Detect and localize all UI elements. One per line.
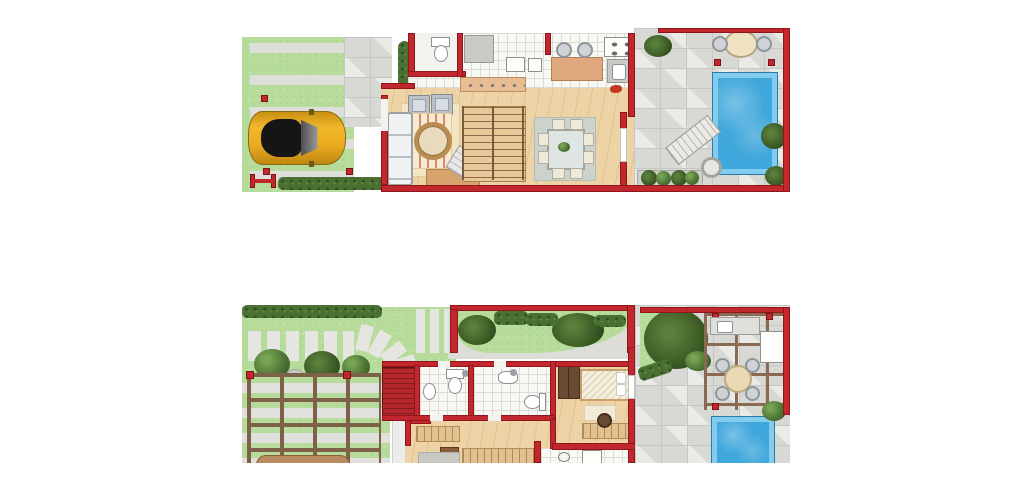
swimming-pool-cropped bbox=[712, 417, 774, 463]
wall bbox=[468, 365, 474, 419]
outdoor-kitchen-counter bbox=[710, 317, 760, 335]
boundary-wall bbox=[450, 309, 458, 353]
pergola-chair bbox=[715, 358, 730, 373]
wall-post bbox=[714, 59, 721, 66]
dining-chair bbox=[552, 119, 565, 130]
sink bbox=[423, 383, 436, 400]
dining-chair bbox=[570, 119, 583, 130]
car-glass bbox=[261, 119, 302, 157]
utility-fixture bbox=[558, 452, 570, 462]
stair-rail bbox=[462, 106, 464, 180]
wall bbox=[534, 441, 541, 463]
gate-marker bbox=[250, 174, 276, 188]
table-centerpiece bbox=[558, 142, 570, 152]
toilet-tank bbox=[539, 393, 546, 411]
pergola-chair bbox=[715, 386, 730, 401]
door-opening bbox=[430, 415, 443, 421]
boundary-wall bbox=[450, 305, 635, 311]
pillow bbox=[616, 372, 626, 384]
wall bbox=[405, 418, 411, 446]
car-mirror bbox=[309, 161, 314, 167]
kitchen-cabinets bbox=[464, 35, 494, 63]
dining-chair bbox=[570, 168, 583, 179]
terrace-bush bbox=[644, 35, 672, 57]
outdoor-table bbox=[724, 30, 758, 58]
dining-chair bbox=[583, 133, 594, 146]
wall bbox=[552, 443, 636, 450]
perimeter-wall-bottom bbox=[381, 185, 790, 192]
wall bbox=[550, 361, 556, 419]
wall bbox=[545, 33, 551, 55]
door-opening bbox=[438, 361, 450, 367]
perimeter-wall-top bbox=[658, 28, 790, 33]
boundary-wall-right bbox=[783, 307, 790, 415]
breakfast-bar bbox=[551, 57, 603, 81]
dining-chair bbox=[583, 151, 594, 164]
wall bbox=[414, 365, 420, 419]
upper-floor-plan bbox=[242, 305, 790, 463]
small-appliance bbox=[528, 58, 542, 72]
peninsula-counter bbox=[460, 77, 526, 92]
shower-head bbox=[510, 369, 517, 376]
toilet-bowl bbox=[434, 45, 448, 62]
wall bbox=[628, 33, 635, 117]
window-opening bbox=[628, 375, 635, 399]
fence-post bbox=[261, 95, 268, 102]
car-mirror bbox=[309, 109, 314, 115]
stair-rail bbox=[492, 106, 494, 180]
wall-post bbox=[768, 59, 775, 66]
hedge-row bbox=[594, 315, 626, 327]
microwave bbox=[506, 57, 525, 72]
pergola-chair bbox=[745, 358, 760, 373]
planter-bush bbox=[641, 170, 657, 186]
garden-hedge bbox=[242, 305, 382, 318]
perimeter-wall-right bbox=[783, 28, 790, 192]
cropped-outdoor-furniture bbox=[256, 455, 350, 463]
car-top-view bbox=[248, 111, 346, 165]
stair-rail bbox=[522, 106, 524, 180]
boundary-wall-top bbox=[640, 307, 790, 313]
pergola-post bbox=[766, 313, 773, 320]
side-table bbox=[701, 157, 722, 178]
wall bbox=[382, 415, 554, 421]
planter-bush bbox=[656, 171, 671, 186]
armchair bbox=[431, 94, 453, 115]
bar-stool bbox=[577, 42, 593, 58]
floor-plans-image bbox=[0, 0, 1024, 500]
pergola-post bbox=[246, 371, 254, 379]
pillow bbox=[616, 384, 626, 396]
desk-chair bbox=[597, 413, 612, 428]
fence-post bbox=[346, 168, 353, 175]
coffee-table bbox=[414, 122, 452, 160]
dining-chair bbox=[552, 168, 565, 179]
bench bbox=[416, 426, 460, 442]
tree bbox=[458, 315, 496, 345]
hedge-row bbox=[526, 313, 558, 326]
ground-floor-plan bbox=[242, 28, 790, 192]
pergola-chair bbox=[745, 386, 760, 401]
bar-stool bbox=[556, 42, 572, 58]
door-opening bbox=[494, 361, 506, 367]
wall bbox=[457, 33, 463, 77]
sofa bbox=[387, 112, 413, 186]
wardrobe bbox=[558, 365, 580, 399]
pergola-post bbox=[343, 371, 351, 379]
staircase bbox=[462, 106, 526, 182]
entry-door-opening bbox=[381, 99, 388, 131]
wall bbox=[381, 83, 415, 89]
lower-rug bbox=[418, 452, 460, 463]
toilet-bowl bbox=[448, 377, 462, 394]
planter-bush bbox=[685, 171, 699, 185]
hedge-row bbox=[494, 311, 528, 325]
sliding-door-opening bbox=[620, 128, 627, 162]
outdoor-chair bbox=[756, 36, 772, 52]
dining-chair bbox=[538, 151, 549, 164]
door-opening bbox=[488, 415, 501, 421]
boundary-wall bbox=[627, 305, 635, 353]
stone-patch bbox=[416, 309, 450, 353]
dining-chair bbox=[538, 133, 549, 146]
pergola-post bbox=[712, 403, 719, 410]
pergola-beams bbox=[247, 373, 381, 463]
cabinet bbox=[582, 450, 602, 463]
outdoor-chair bbox=[712, 36, 728, 52]
cropped-bed bbox=[462, 448, 536, 463]
counter-decor bbox=[610, 85, 622, 93]
